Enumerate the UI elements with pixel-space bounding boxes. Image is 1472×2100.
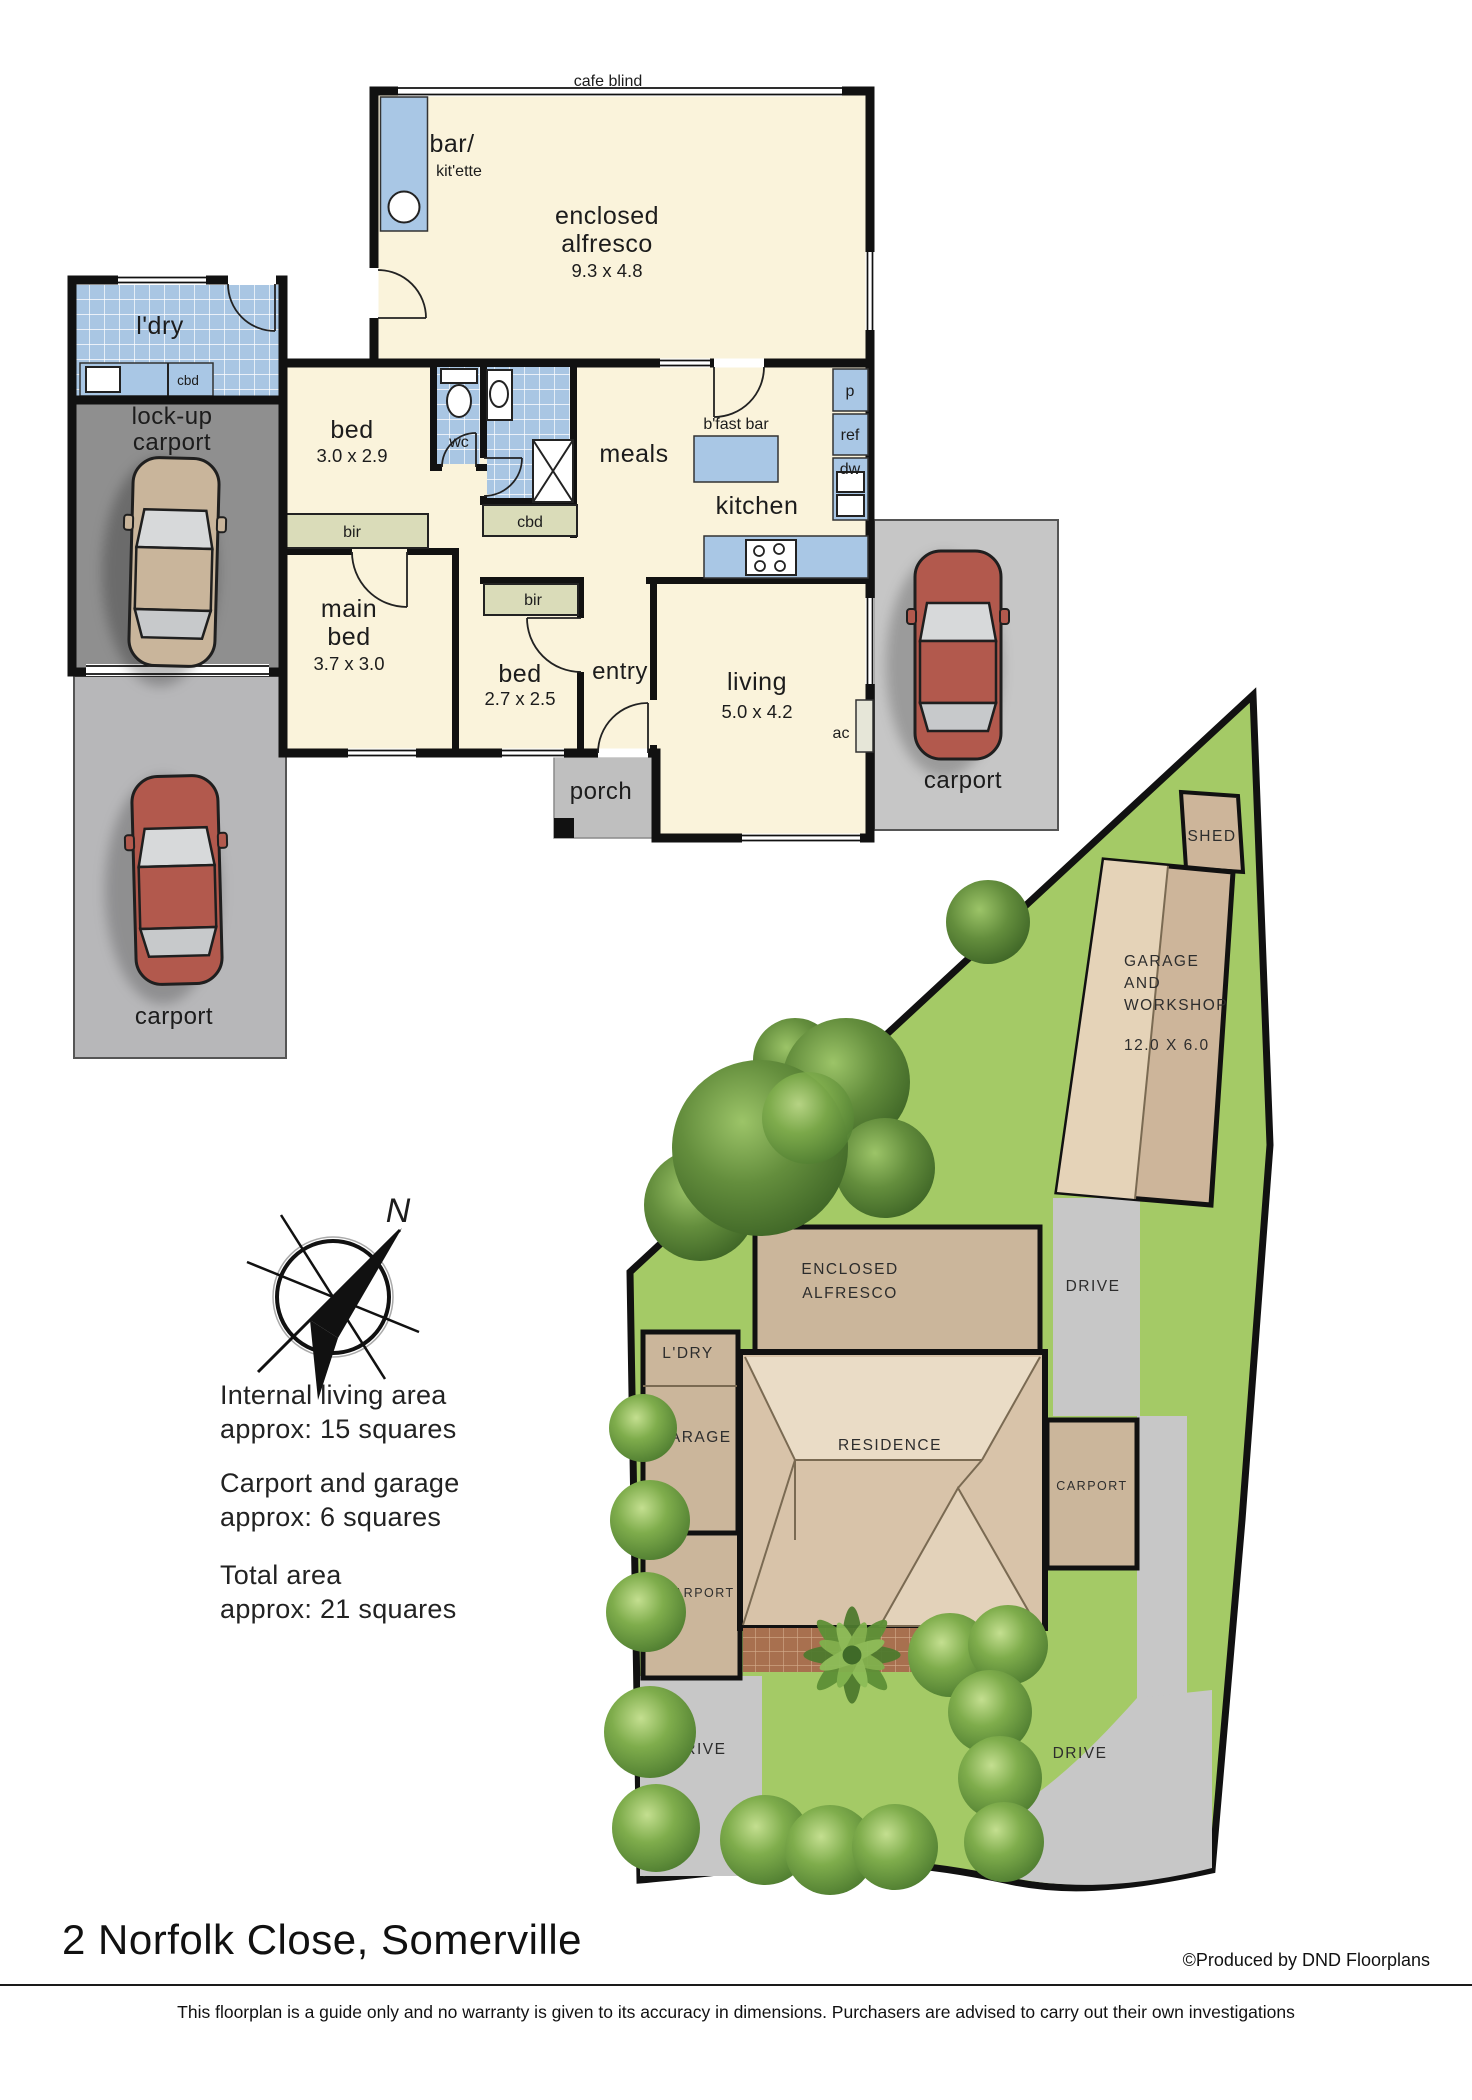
site-gw-label-2: AND <box>1124 975 1161 992</box>
breakfast-bar <box>694 436 778 482</box>
bar-label: bar/ <box>429 130 474 158</box>
porch-post <box>554 818 574 838</box>
living-dims: 5.0 x 4.2 <box>722 701 793 722</box>
mainbed-label-2: bed <box>327 623 370 651</box>
site-alfresco-label-2: ALFRESCO <box>802 1285 898 1302</box>
bir-bed3-label: bir <box>524 592 542 609</box>
bed2-label: bed <box>330 416 373 444</box>
porch-label: porch <box>570 778 633 805</box>
bed3-label: bed <box>498 660 541 688</box>
bed3-dims: 2.7 x 2.5 <box>485 688 556 709</box>
page-title: 2 Norfolk Close, Somerville <box>62 1916 582 1964</box>
site-drive-right-label: DRIVE <box>1053 1745 1108 1762</box>
site-carport-right-label: CARPORT <box>1056 1479 1127 1493</box>
bar-sink <box>389 192 420 223</box>
cafe-blind-label: cafe blind <box>574 73 643 90</box>
carport-left-label: carport <box>135 1003 213 1030</box>
washing-machine <box>86 367 120 392</box>
drive-upper <box>1053 1198 1140 1416</box>
ac-label: ac <box>833 725 850 742</box>
floorplan-drawing: SHED GARAGE AND WORKSHOP 12.0 X 6.0 DRIV… <box>0 0 1472 2100</box>
credit-line: ©Produced by DND Floorplans <box>1130 1950 1430 1971</box>
site-carport-right <box>1047 1420 1137 1568</box>
shower <box>533 440 573 502</box>
mainbed-label-1: main <box>321 595 377 623</box>
laundry-cbd-label: cbd <box>177 373 199 388</box>
compass-rose: N <box>247 1192 419 1400</box>
front-door-gap <box>598 749 648 758</box>
bir-main-label: bir <box>343 524 361 541</box>
garage-area-line2: approx: 6 squares <box>220 1500 460 1534</box>
site-gw-dims: 12.0 X 6.0 <box>1124 1037 1210 1054</box>
car-red-left <box>105 775 231 1004</box>
ac-unit <box>856 700 873 752</box>
site-shed-label: SHED <box>1187 828 1236 845</box>
drive-right-strip <box>1137 1416 1187 1708</box>
total-area-line2: approx: 21 squares <box>220 1592 457 1626</box>
basin <box>490 381 508 407</box>
bed2-dims: 3.0 x 2.9 <box>317 445 388 466</box>
wc-label: wc <box>448 434 469 451</box>
area-summary-total: Total area approx: 21 squares <box>220 1558 457 1626</box>
dw-label: dw <box>840 461 861 478</box>
laundry-label: l'dry <box>136 312 184 340</box>
garage-area-line1: Carport and garage <box>220 1466 460 1500</box>
site-ldry-label: L'DRY <box>662 1345 714 1362</box>
footer-divider <box>0 1984 1472 1986</box>
carport-right-label: carport <box>924 767 1002 794</box>
pantry-label: p <box>846 383 855 400</box>
car-red-right <box>886 551 1009 777</box>
site-residence-label: RESIDENCE <box>838 1437 942 1454</box>
site-residence <box>740 1352 1045 1628</box>
alfresco-label-2: alfresco <box>561 230 653 258</box>
disclaimer-text: This floorplan is a guide only and no wa… <box>0 2002 1472 2023</box>
internal-area-line2: approx: 15 squares <box>220 1412 457 1446</box>
lockup-label-2: carport <box>133 429 211 456</box>
site-alfresco-label-1: ENCLOSED <box>801 1261 898 1278</box>
alfresco-label-1: enclosed <box>555 202 659 230</box>
floor-plan: cafe blind bar/ kit'ette enclosed alfres… <box>72 73 1058 1058</box>
entry-label: entry <box>592 658 648 685</box>
site-plan: SHED GARAGE AND WORKSHOP 12.0 X 6.0 DRIV… <box>604 695 1270 1895</box>
compass-north-label: N <box>386 1192 411 1230</box>
alfresco-meals-door-gap <box>714 359 764 368</box>
mainbed-dims: 3.7 x 3.0 <box>314 653 385 674</box>
toilet-cistern <box>441 369 477 383</box>
toilet-bowl <box>447 385 471 417</box>
alfresco-door-gap <box>370 268 379 318</box>
site-drive-upper-label: DRIVE <box>1066 1278 1121 1295</box>
palm-tree <box>803 1606 900 1703</box>
internal-area-line1: Internal living area <box>220 1378 457 1412</box>
meals-label: meals <box>599 440 668 468</box>
living-label: living <box>727 668 787 696</box>
alfresco-dims: 9.3 x 4.8 <box>572 260 643 281</box>
site-gw-label-3: WORKSHOP <box>1124 997 1228 1014</box>
area-summary-garage: Carport and garage approx: 6 squares <box>220 1466 460 1534</box>
total-area-line1: Total area <box>220 1558 457 1592</box>
hall-cbd-label: cbd <box>517 514 543 531</box>
area-summary-internal: Internal living area approx: 15 squares <box>220 1378 457 1446</box>
floorplan-page: SHED GARAGE AND WORKSHOP 12.0 X 6.0 DRIV… <box>0 0 1472 2100</box>
kitchen-label: kitchen <box>716 492 799 520</box>
ref-label: ref <box>841 427 860 444</box>
car-beige <box>102 457 228 686</box>
kitette-label: kit'ette <box>436 163 482 180</box>
bfast-bar-label: b'fast bar <box>703 416 769 433</box>
lockup-label-1: lock-up <box>132 403 213 430</box>
cooktop <box>746 540 796 575</box>
site-gw-label-1: GARAGE <box>1124 953 1199 970</box>
laundry-door-gap <box>228 276 276 285</box>
